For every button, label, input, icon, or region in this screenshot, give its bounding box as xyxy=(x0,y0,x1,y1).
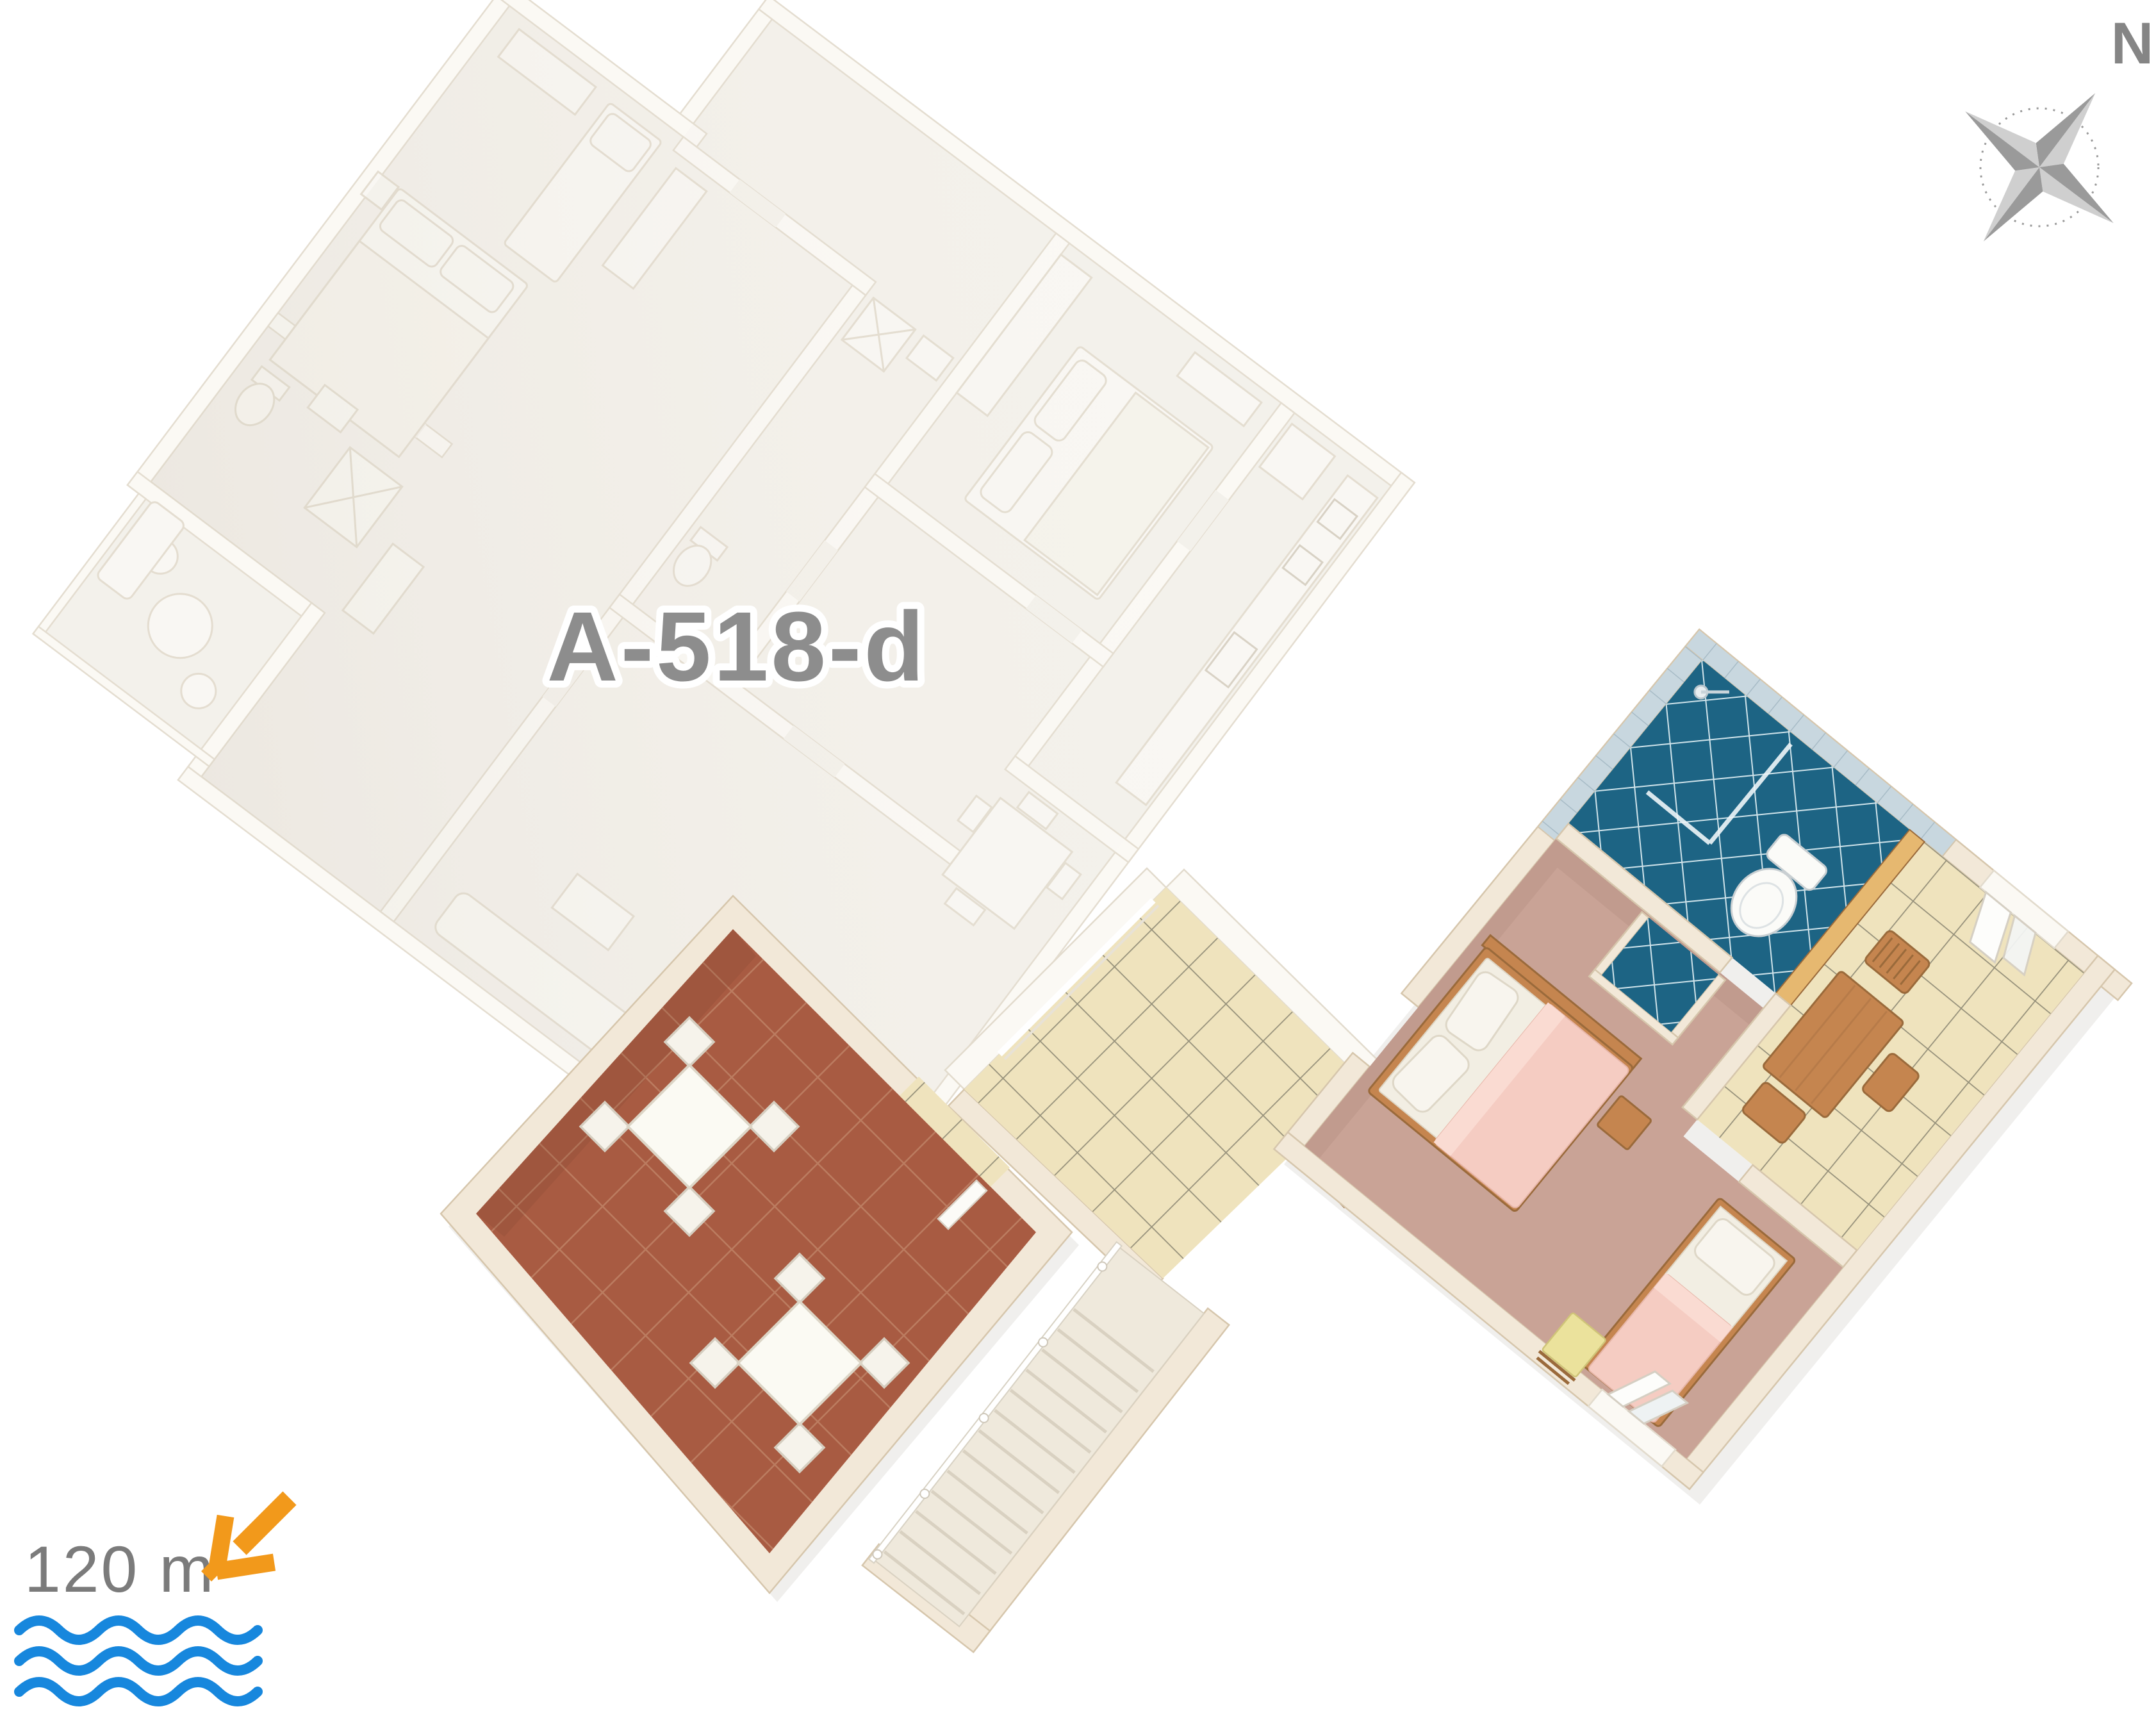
arrow-down-left-icon xyxy=(201,1498,290,1581)
highlighted-unit xyxy=(1274,629,2132,1503)
floor-plan-image: A-518-d N 120 m xyxy=(0,0,2156,1709)
compass-north-label: N xyxy=(2111,11,2153,76)
sea-distance-label: 120 m xyxy=(24,1533,216,1606)
apartment-code-label: A-518-d xyxy=(547,591,927,702)
floor-plan-canvas: A-518-d N 120 m xyxy=(0,0,2156,1709)
water-waves-icon xyxy=(19,1621,258,1701)
